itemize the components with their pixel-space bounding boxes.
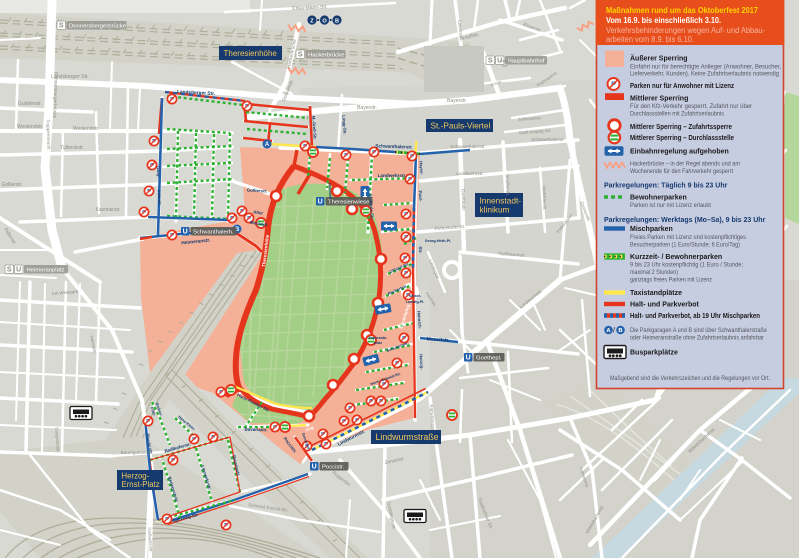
svg-text:Wochenende für den Fahrverkehr: Wochenende für den Fahrverkehr gesperrt xyxy=(630,168,733,175)
svg-text:maximal 2 Stunden): maximal 2 Stunden) xyxy=(630,269,678,276)
svg-text:Die Parkgaragen A und B sind ü: Die Parkgaragen A und B sind über Schwan… xyxy=(630,327,767,334)
svg-text:Theresienwiese: Theresienwiese xyxy=(328,199,370,205)
svg-text:Hauptbahnhof: Hauptbahnhof xyxy=(508,58,545,64)
svg-text:Parkregelungen: Werktags (Mo–S: Parkregelungen: Werktags (Mo–Sa), 9 bis … xyxy=(604,217,766,224)
svg-text:Esperanto-: Esperanto- xyxy=(369,336,389,340)
svg-text:U: U xyxy=(16,267,21,274)
svg-text:Mittlerer Sperring: Mittlerer Sperring xyxy=(630,96,688,103)
svg-text:U: U xyxy=(312,464,317,471)
svg-text:arbeiten vom 8.9. bis 6.10.: arbeiten vom 8.9. bis 6.10. xyxy=(606,35,694,44)
svg-text:Besucherparken (1 Euro/Stunde;: Besucherparken (1 Euro/Stunde; 6 Euro/Ta… xyxy=(630,241,740,248)
svg-text:S: S xyxy=(59,23,64,30)
svg-text:Gollierstr.: Gollierstr. xyxy=(1,182,22,188)
svg-text:Paul-: Paul- xyxy=(418,190,424,202)
svg-text:Ernst-Platz: Ernst-Platz xyxy=(122,480,160,489)
svg-text:Kaiser-: Kaiser- xyxy=(409,294,422,298)
svg-text:Hayse-: Hayse- xyxy=(419,161,425,176)
svg-text:Donnersbergerbrücke: Donnersbergerbrücke xyxy=(69,23,127,29)
svg-text:Parkregelungen: Täglich 9 bis: Parkregelungen: Täglich 9 bis 23 Uhr xyxy=(604,183,728,190)
svg-text:Westendstr.: Westendstr. xyxy=(17,124,43,130)
svg-text:U: U xyxy=(318,199,323,206)
svg-text:Verkehrsbehinderungen wegen Au: Verkehrsbehinderungen wegen Auf- und Abb… xyxy=(606,26,765,35)
svg-text:Bayerstr.: Bayerstr. xyxy=(357,105,377,111)
svg-text:Ludwig-Pl.: Ludwig-Pl. xyxy=(406,300,425,304)
svg-text:Parken ist nur mit Lizenz erla: Parken ist nur mit Lizenz erlaubt xyxy=(630,202,711,209)
svg-text:B: B xyxy=(618,328,622,334)
svg-text:Hackerbrücke – in der Regel ab: Hackerbrücke – in der Regel abends und a… xyxy=(630,160,740,167)
svg-text:Mischparken: Mischparken xyxy=(630,226,673,233)
svg-text:Mozartstr.: Mozartstr. xyxy=(427,336,450,343)
svg-text:Busparkplätze: Busparkplätze xyxy=(630,350,678,357)
svg-text:Z: Z xyxy=(310,18,314,24)
svg-text:hof-: hof- xyxy=(502,64,509,68)
svg-text:/: / xyxy=(613,328,615,335)
svg-text:S: S xyxy=(7,267,12,274)
svg-text:Herzog-: Herzog- xyxy=(122,471,150,480)
svg-text:Poccistr.: Poccistr. xyxy=(322,464,345,470)
svg-text:Lieferverkehr, Kunden). Keine: Lieferverkehr, Kunden). Keine Zufahrtser… xyxy=(630,71,780,78)
svg-text:Äußerer Sperring: Äußerer Sperring xyxy=(630,55,688,63)
svg-text:Einbahnregelung aufgehoben: Einbahnregelung aufgehoben xyxy=(630,149,729,156)
svg-text:oder Heimeranstraße ohne Zufah: oder Heimeranstraße ohne Zufahrtserlaubn… xyxy=(630,334,764,341)
svg-text:Parken nur für Anwohner mit Li: Parken nur für Anwohner mit Lizenz xyxy=(630,83,734,90)
svg-text:B: B xyxy=(335,18,339,24)
svg-text:Gollierstr.: Gollierstr. xyxy=(247,187,268,193)
svg-text:Schwanthalerstr.: Schwanthalerstr. xyxy=(450,144,485,150)
svg-text:klinikum: klinikum xyxy=(480,205,510,215)
svg-text:Bavariastr.: Bavariastr. xyxy=(244,427,267,433)
svg-text:Schillerstr.: Schillerstr. xyxy=(504,174,511,196)
svg-text:Mittlerer Sperring – Durchlass: Mittlerer Sperring – Durchlassstelle xyxy=(630,135,734,142)
svg-text:Für den Kfz-Verkehr gesperrt,: Für den Kfz-Verkehr gesperrt, Zufahrt nu… xyxy=(630,103,752,110)
svg-text:Westendstr.: Westendstr. xyxy=(73,126,99,132)
svg-text:Einfahrt nur für berechtigte A: Einfahrt nur für berechtigte Anlieger (A… xyxy=(630,63,781,70)
svg-text:Mittlerer Sperring – Zufahrtss: Mittlerer Sperring – Zufahrtssperre xyxy=(630,124,732,131)
svg-text:Theresienhöhe: Theresienhöhe xyxy=(224,49,278,58)
svg-text:Kazmairstr.: Kazmairstr. xyxy=(95,207,120,213)
svg-text:Georg-Hirth-Pl.: Georg-Hirth-Pl. xyxy=(425,239,451,243)
svg-text:U: U xyxy=(466,355,471,362)
svg-text:St.-Pauls-Viertel: St.-Pauls-Viertel xyxy=(431,120,491,130)
svg-text:9 bis 23 Uhr kostenpflichtig (: 9 bis 23 Uhr kostenpflichtig (1 Euro / S… xyxy=(630,261,743,268)
svg-text:Str.: Str. xyxy=(418,246,423,253)
svg-text:Tulbeckstr.: Tulbeckstr. xyxy=(60,145,84,151)
svg-text:platz: platz xyxy=(374,341,382,345)
svg-text:Landwehrstr.: Landwehrstr. xyxy=(378,173,407,178)
svg-text:U: U xyxy=(183,229,188,236)
svg-text:Freies Parken mit Lizenz und k: Freies Parken mit Lizenz und kostenpflic… xyxy=(630,234,746,241)
svg-text:Schwanthalerh.: Schwanthalerh. xyxy=(193,229,234,235)
svg-text:Maßgebend sind die Verkehrszei: Maßgebend sind die Verkehrszeichen und d… xyxy=(610,376,770,382)
svg-text:Lindwurmstraße: Lindwurmstraße xyxy=(376,432,439,442)
svg-text:Bayerstr.: Bayerstr. xyxy=(447,98,467,104)
svg-text:Gang-: Gang- xyxy=(156,166,162,179)
svg-text:Halt- und Parkverbot, ab 19 Uh: Halt- und Parkverbot, ab 19 Uhr Mischpar… xyxy=(630,313,760,320)
svg-text:ganztags freies Parken mit Liz: ganztags freies Parken mit Lizenz xyxy=(630,276,712,283)
svg-text:Bewohnerparken: Bewohnerparken xyxy=(630,195,687,202)
svg-text:Landwehrstr.: Landwehrstr. xyxy=(456,171,483,177)
svg-text:Halt- und Parkverbot: Halt- und Parkverbot xyxy=(630,302,700,309)
svg-text:Taxistandplätze: Taxistandplätze xyxy=(630,290,682,297)
svg-text:A: A xyxy=(265,142,270,148)
svg-text:Durchlassstellen mit Zufahrtse: Durchlassstellen mit Zufahrtserlaubnis xyxy=(630,111,724,118)
svg-text:O: O xyxy=(322,18,327,24)
svg-text:Mathildenstr.: Mathildenstr. xyxy=(542,185,548,210)
svg-text:S: S xyxy=(298,52,303,59)
svg-text:Goethestr.: Goethestr. xyxy=(460,189,467,211)
svg-text:Bahn-: Bahn- xyxy=(500,59,510,63)
svg-text:Schwanthalerstr.: Schwanthalerstr. xyxy=(531,137,564,142)
svg-text:S: S xyxy=(488,58,493,65)
svg-text:Maßnahmen rund um das Oktoberf: Maßnahmen rund um das Oktoberfest 2017 xyxy=(606,5,758,15)
svg-text:Kurzzeit- / Bewohnerparken: Kurzzeit- / Bewohnerparken xyxy=(630,254,722,261)
svg-text:Hackerbrücke: Hackerbrücke xyxy=(308,52,345,58)
svg-text:Goethepl.: Goethepl. xyxy=(476,355,502,361)
svg-text:Guldeinstr.: Guldeinstr. xyxy=(18,101,42,107)
svg-text:Heimeranplatz: Heimeranplatz xyxy=(27,267,65,273)
svg-text:Vom 16.9. bis einschließlich 3: Vom 16.9. bis einschließlich 3.10. xyxy=(606,15,721,25)
